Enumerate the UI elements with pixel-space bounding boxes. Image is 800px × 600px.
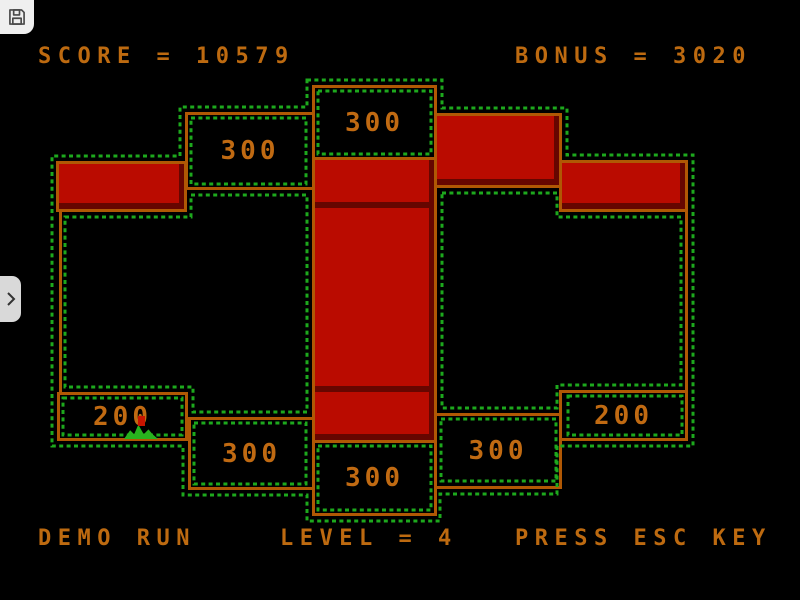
boundary-line-left	[59, 210, 62, 394]
score-box-bottom-far-left: 200	[57, 392, 188, 441]
floppy-disk-icon	[7, 7, 27, 27]
save-button[interactable]	[0, 0, 34, 34]
score-box-bottom-far-right: 200	[559, 390, 688, 441]
bonus-text: BONUS = 3020	[515, 45, 752, 69]
score-box-label: 300	[345, 463, 404, 493]
red-block-far-right	[559, 160, 688, 212]
score-box-top-center: 300	[312, 85, 437, 160]
level-text: LEVEL = 4	[280, 527, 458, 551]
score-text: SCORE = 10579	[38, 45, 295, 69]
press-esc-text: PRESS ESC KEY	[515, 527, 772, 551]
score-box-bottom-left: 300	[188, 417, 315, 490]
score-box-bottom-center: 300	[312, 440, 437, 516]
score-box-label: 300	[345, 108, 404, 138]
score-box-bottom-right: 300	[434, 413, 562, 489]
demo-run-text: DEMO RUN	[38, 527, 196, 551]
score-box-top-left: 300	[185, 112, 315, 190]
score-box-label: 300	[221, 136, 280, 166]
red-block-center-bottom	[312, 392, 437, 440]
chevron-right-icon	[5, 288, 17, 310]
red-block-center-middle	[312, 208, 437, 392]
red-block-left	[56, 161, 187, 212]
score-box-label: 300	[469, 436, 528, 466]
player-marker-chip	[138, 416, 145, 426]
score-box-label: 200	[594, 401, 653, 431]
red-block-center-top	[312, 160, 437, 208]
red-block-right	[434, 113, 562, 188]
sidebar-toggle-button[interactable]	[0, 276, 21, 322]
boundary-line-right	[685, 210, 688, 392]
score-box-label: 300	[222, 439, 281, 469]
